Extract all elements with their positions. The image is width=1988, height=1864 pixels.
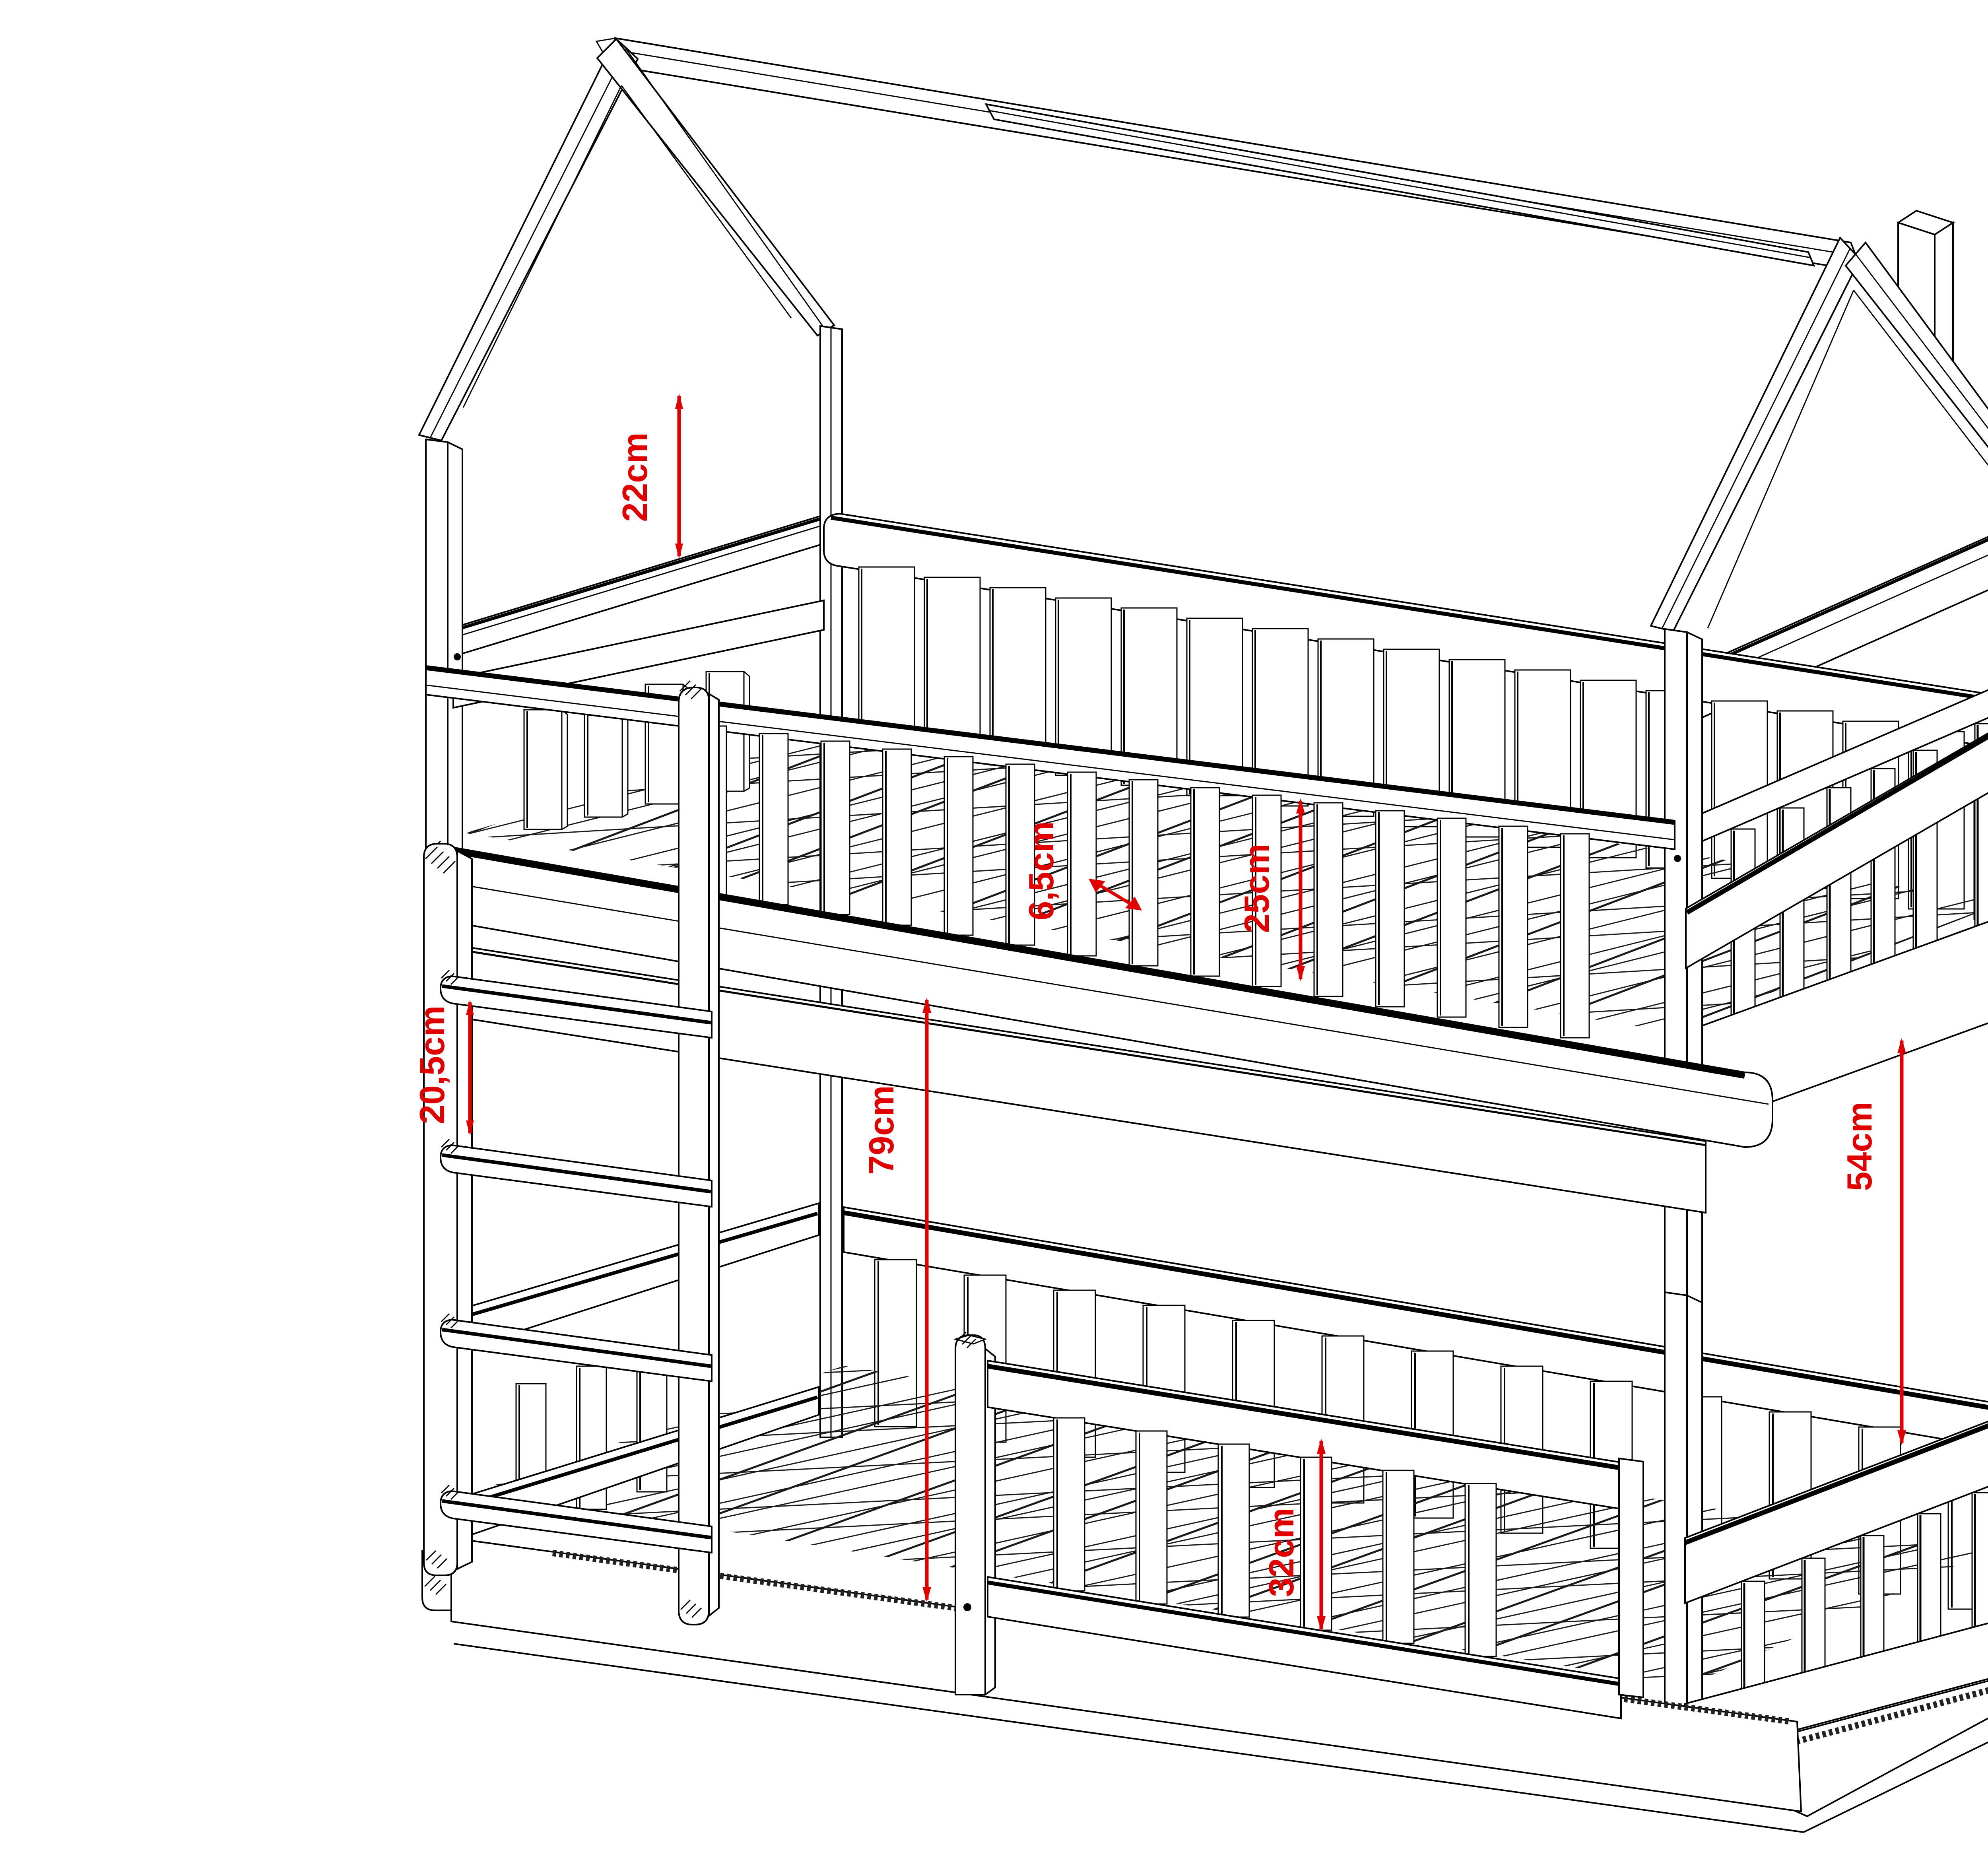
- svg-text:20,5cm: 20,5cm: [412, 1006, 452, 1124]
- svg-text:22cm: 22cm: [615, 432, 654, 522]
- svg-text:32cm: 32cm: [1262, 1507, 1301, 1597]
- svg-text:79cm: 79cm: [862, 1085, 901, 1175]
- svg-text:6,5cm: 6,5cm: [1021, 821, 1061, 920]
- svg-text:54cm: 54cm: [1840, 1101, 1879, 1191]
- svg-text:25cm: 25cm: [1237, 843, 1276, 933]
